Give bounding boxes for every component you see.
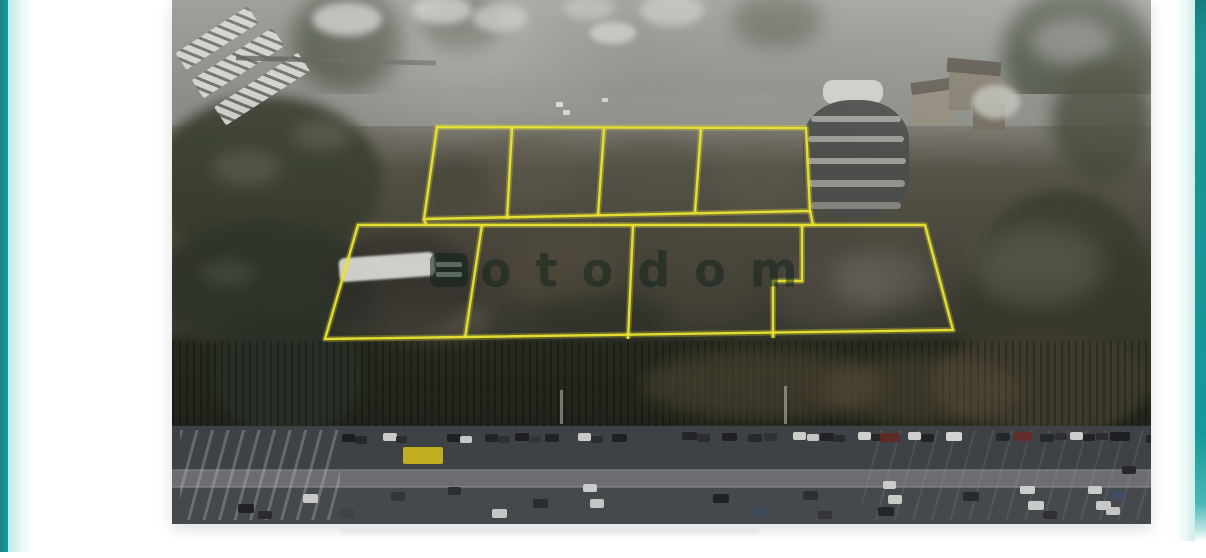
photo-drop-shadow (340, 529, 760, 533)
listing-photo-aerial-plots[interactable]: otodom (172, 0, 1151, 524)
plot-boundary-line (424, 127, 810, 219)
page-gutter-left (8, 0, 38, 552)
otodom-logo-icon (430, 253, 468, 287)
otodom-watermark: otodom (430, 248, 822, 292)
page-accent-stripe-left (0, 0, 8, 552)
listing-page: otodom (0, 0, 1206, 558)
plot-boundary-line (424, 127, 810, 219)
page-accent-stripe-right (1195, 0, 1206, 541)
watermark-text: otodom (480, 246, 822, 294)
page-gutter-right (1151, 0, 1195, 541)
